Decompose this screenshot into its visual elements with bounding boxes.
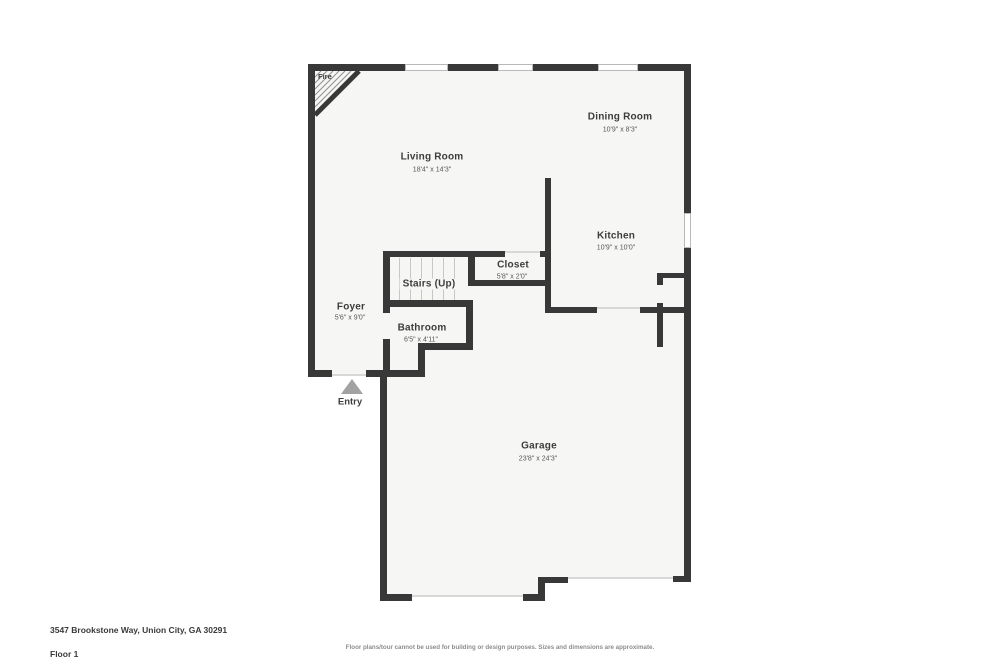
closet-door-opening xyxy=(505,251,540,253)
window-top-3 xyxy=(598,64,638,71)
wall-garage-step-horizontal xyxy=(541,577,568,583)
room-dims-foyer: 5'6" x 9'0" xyxy=(335,315,366,322)
room-dims-living-room: 18'4" x 14'3" xyxy=(413,167,451,174)
wall-divider-living-kitchen xyxy=(545,178,551,313)
floor-fill-garage-right xyxy=(541,305,688,578)
wall-stairs-top xyxy=(383,251,505,257)
wall-closet-bottom xyxy=(468,280,551,286)
wall-foyer-bottom-left xyxy=(308,370,332,377)
wall-kitchen-bottom-left xyxy=(545,307,597,313)
wall-garage-left xyxy=(380,370,387,601)
window-top-2 xyxy=(498,64,533,71)
floorplan-page: Fire Entry Living Room 18'4" x 14'3" Din… xyxy=(0,0,1000,667)
garage-door-opening-left xyxy=(412,595,523,597)
room-dims-garage: 23'8" x 24'3" xyxy=(519,456,557,463)
window-right xyxy=(684,213,691,248)
garage-door-opening-right xyxy=(568,577,673,579)
room-label-kitchen: Kitchen xyxy=(597,231,635,242)
wall-top-3 xyxy=(533,64,598,71)
wall-top-2 xyxy=(448,64,498,71)
wall-right-lower xyxy=(684,248,691,582)
address-text: 3547 Brookstone Way, Union City, GA 3029… xyxy=(50,625,227,635)
disclaimer-text: Floor plans/tour cannot be used for buil… xyxy=(346,644,654,651)
room-label-living-room: Living Room xyxy=(401,152,464,163)
room-label-bathroom: Bathroom xyxy=(398,323,447,334)
entry-label: Entry xyxy=(338,397,362,408)
room-dims-bathroom: 6'5" x 4'11" xyxy=(404,337,438,344)
window-top-1 xyxy=(405,64,448,71)
wall-corner-closet-left-b xyxy=(657,303,663,347)
entry-door-opening xyxy=(332,374,366,376)
kitchen-garage-door-opening xyxy=(597,307,640,309)
wall-left xyxy=(308,64,315,377)
floor-label: Floor 1 xyxy=(50,649,78,659)
room-label-stairs: Stairs (Up) xyxy=(400,279,459,290)
wall-foyer-bottom-right xyxy=(366,370,425,377)
room-label-foyer: Foyer xyxy=(337,302,365,313)
wall-bathroom-top xyxy=(383,300,473,307)
wall-bathroom-garage-link xyxy=(418,343,425,377)
wall-garage-bottom-right xyxy=(673,576,691,582)
wall-kitchen-bottom-right xyxy=(640,307,691,313)
room-dims-closet: 5'8" x 2'0" xyxy=(497,274,528,281)
wall-top-1 xyxy=(308,64,405,71)
wall-bathroom-bottom xyxy=(418,343,473,350)
room-label-garage: Garage xyxy=(521,441,557,452)
entry-arrow-icon xyxy=(341,379,363,394)
room-dims-kitchen: 10'9" x 10'0" xyxy=(597,245,635,252)
room-dims-dining-room: 10'9" x 8'3" xyxy=(603,127,638,134)
room-label-closet: Closet xyxy=(497,260,529,271)
room-label-dining-room: Dining Room xyxy=(588,112,652,123)
fireplace-label: Fire xyxy=(318,72,332,81)
wall-garage-bottom-left-a xyxy=(380,594,412,601)
wall-corner-closet-left-a xyxy=(657,273,663,285)
wall-right-upper xyxy=(684,64,691,213)
